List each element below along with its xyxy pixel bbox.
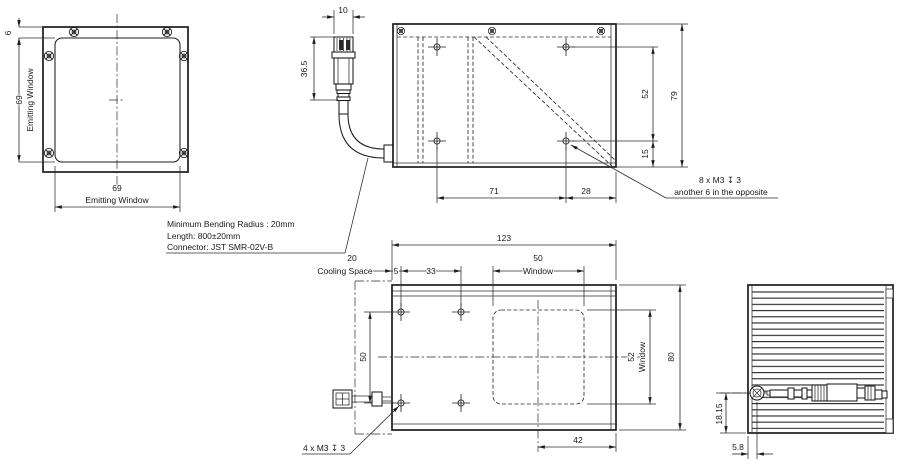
bottom-body-outline xyxy=(392,285,616,430)
screw-icon xyxy=(69,27,78,36)
cable-connector-plug xyxy=(332,37,355,114)
bottom-dim-42-text: 42 xyxy=(573,435,583,445)
screw-icon xyxy=(488,27,495,34)
front-body-outline xyxy=(43,27,188,172)
bottom-dim-50-left-text: 50 xyxy=(358,352,368,362)
front-dim-height-text: 69 xyxy=(14,95,24,105)
screw-icon xyxy=(44,148,53,157)
top-dim-52-text: 52 xyxy=(640,89,650,99)
side-flange-notch xyxy=(886,419,893,433)
front-dim-width-text: 69 xyxy=(112,183,122,193)
top-dim-79-text: 79 xyxy=(669,91,679,101)
top-body-outline xyxy=(393,24,616,167)
side-dim-5-8-text: 5.8 xyxy=(732,442,744,452)
connector-detail-view: 10 36.5 xyxy=(299,5,393,162)
side-dim-18-15: 18.15 xyxy=(714,393,749,433)
mounting-hole-icon xyxy=(452,394,470,412)
side-flange-notch xyxy=(886,289,893,298)
top-dim-15-text: 15 xyxy=(640,149,650,159)
bottom-thread-note: 4 x M3 ↧ 3 xyxy=(302,406,399,454)
front-dim-offset: 6 xyxy=(3,18,55,47)
heatsink-fins xyxy=(752,291,884,429)
top-view: 52 15 79 71 28 8 x M3 ↧ 3 another 6 i xyxy=(393,24,778,203)
bottom-dim-52-text: 52 xyxy=(626,352,636,362)
cable-ferrule xyxy=(384,145,393,162)
top-dim-15: 15 xyxy=(617,141,688,167)
bottom-dim-42: 42 xyxy=(538,433,616,452)
drawing-svg: 6 69 Emitting Window 69 Emitting Window … xyxy=(0,0,913,469)
hidden-diagonal xyxy=(486,37,616,161)
bottom-dim-80-text: 80 xyxy=(666,352,676,362)
top-dim-28-text: 28 xyxy=(581,186,591,196)
technical-drawing-page: 6 69 Emitting Window 69 Emitting Window … xyxy=(0,0,913,469)
bottom-dim-20-text: 20 xyxy=(347,253,357,263)
top-dim-52: 52 xyxy=(572,47,658,141)
side-view: 18.15 5.8 xyxy=(714,285,893,459)
connector-dim-height: 36.5 xyxy=(299,37,338,100)
side-dim-18-15-text: 18.15 xyxy=(714,403,724,425)
bottom-window-label-top: Window xyxy=(523,266,554,276)
bottom-dim-50-left: 50 xyxy=(358,312,394,403)
top-thread-note: 8 x M3 ↧ 3 another 6 in the opposite xyxy=(571,145,778,198)
cable xyxy=(339,114,393,162)
bottom-dim-33-text: 33 xyxy=(426,266,436,276)
screw-icon xyxy=(44,51,53,60)
cable-note-leader xyxy=(345,158,368,253)
front-dim-offset-text: 6 xyxy=(3,30,13,35)
mounting-hole-icon xyxy=(428,38,446,56)
connector-dim-width-text: 10 xyxy=(338,5,348,15)
cable-note-line1: Minimum Bending Radius : 20mm xyxy=(167,219,295,229)
bottom-window-label-right: Window xyxy=(637,341,647,372)
screw-icon xyxy=(162,27,171,36)
top-thread-note-line2: another 6 in the opposite xyxy=(674,187,768,197)
top-dim-71-text: 71 xyxy=(489,186,499,196)
front-dim-width-label: Emitting Window xyxy=(85,195,149,205)
cable-note-line3: Connector: JST SMR-02V-B xyxy=(167,242,273,252)
screw-icon xyxy=(597,27,604,34)
bottom-dim-123-text: 123 xyxy=(497,233,511,243)
hidden-diagonal xyxy=(474,37,612,166)
bottom-dim-50-top-text: 50 xyxy=(533,253,543,263)
front-view: 6 69 Emitting Window 69 Emitting Window xyxy=(3,14,189,212)
cable-note-line2: Length: 800±20mm xyxy=(167,231,240,241)
bottom-thread-note-text: 4 x M3 ↧ 3 xyxy=(303,443,345,453)
screw-icon xyxy=(397,27,404,34)
connector-dim-width: 10 xyxy=(322,5,365,34)
bottom-dim-5-text: 5 xyxy=(394,266,399,276)
top-thread-note-line1: 8 x M3 ↧ 3 xyxy=(699,175,741,185)
top-dim-79: 79 xyxy=(617,24,688,167)
front-dim-height-label: Emitting Window xyxy=(25,67,35,131)
mounting-hole-icon xyxy=(392,394,410,412)
connector-dim-height-text: 36.5 xyxy=(299,60,309,77)
bottom-cooling-label: Cooling Space xyxy=(317,266,373,276)
bottom-view: 123 20 Cooling Space 5 33 50 Window 50 xyxy=(302,233,686,454)
bottom-cable-connector xyxy=(333,390,392,408)
bottom-window-hidden xyxy=(493,310,584,404)
cable-note: Minimum Bending Radius : 20mm Length: 80… xyxy=(166,158,368,253)
bottom-dim-row: 20 Cooling Space 5 33 50 Window xyxy=(317,253,584,306)
front-dim-width: 69 Emitting Window xyxy=(55,166,180,212)
